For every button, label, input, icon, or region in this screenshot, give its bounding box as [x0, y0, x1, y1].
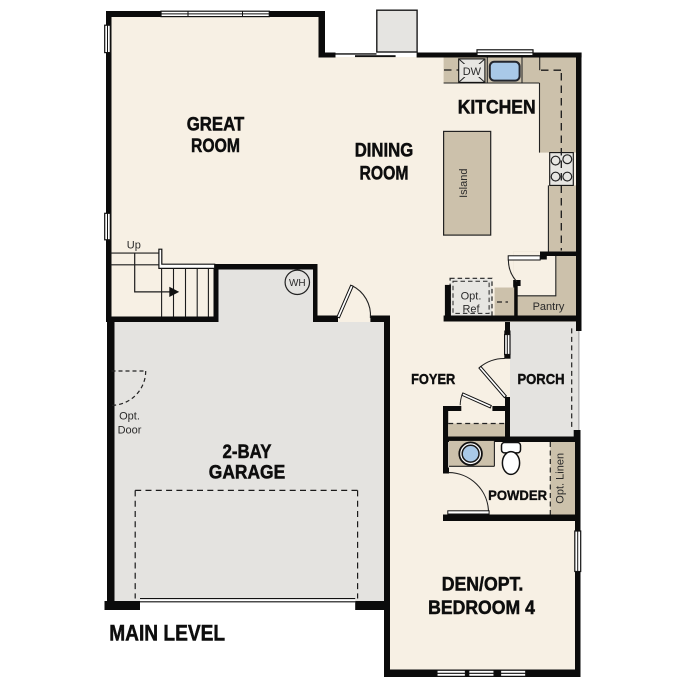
svg-text:ROOM: ROOM [191, 135, 240, 157]
svg-text:DW: DW [463, 66, 482, 78]
svg-text:Opt.: Opt. [119, 411, 140, 423]
svg-text:MAIN LEVEL: MAIN LEVEL [109, 621, 225, 646]
svg-text:Up: Up [127, 240, 141, 252]
svg-text:DEN/OPT.: DEN/OPT. [442, 574, 524, 596]
svg-text:PORCH: PORCH [518, 371, 565, 388]
svg-text:GARAGE: GARAGE [209, 462, 285, 484]
svg-text:Opt. Linen: Opt. Linen [555, 453, 567, 504]
svg-text:DINING: DINING [355, 140, 414, 162]
svg-text:Pantry: Pantry [533, 301, 565, 313]
svg-text:Island: Island [458, 169, 470, 198]
svg-text:BEDROOM 4: BEDROOM 4 [428, 597, 535, 619]
svg-text:KITCHEN: KITCHEN [458, 97, 536, 119]
svg-text:Opt.: Opt. [461, 291, 482, 303]
svg-text:GREAT: GREAT [187, 114, 245, 136]
svg-text:Door: Door [118, 425, 142, 437]
svg-text:FOYER: FOYER [411, 371, 455, 388]
svg-text:POWDER: POWDER [488, 488, 547, 503]
svg-text:Ref: Ref [462, 304, 480, 316]
svg-text:WH: WH [289, 278, 306, 289]
svg-text:2-BAY: 2-BAY [223, 441, 272, 463]
svg-text:ROOM: ROOM [360, 163, 409, 185]
